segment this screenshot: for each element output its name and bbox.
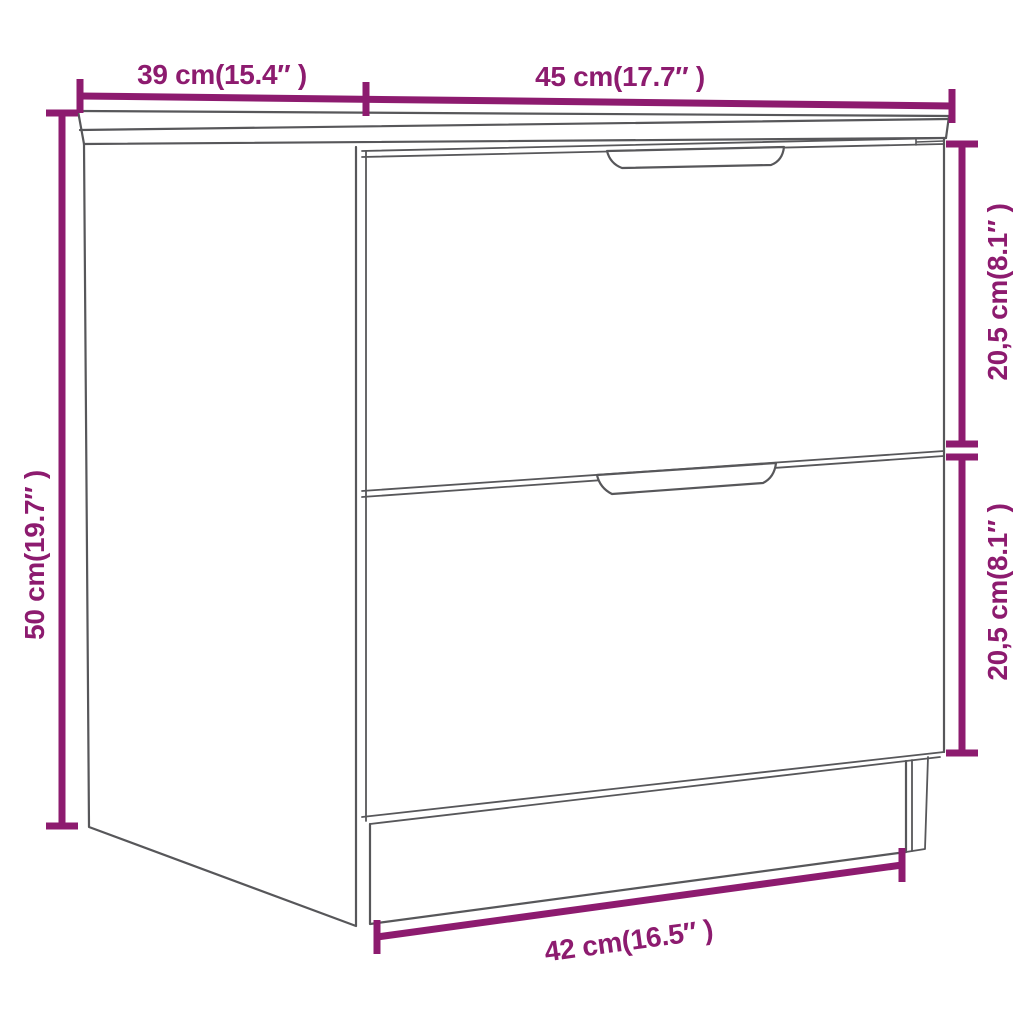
dim-depth-label: 39 cm(15.4″ ) <box>137 59 307 90</box>
diagram-canvas: 39 cm(15.4″ ) 45 cm(17.7″ ) 50 cm(19.7″ … <box>0 0 1024 1024</box>
lower-drawer-handle <box>597 463 776 494</box>
dimension-labels: 39 cm(15.4″ ) 45 cm(17.7″ ) 50 cm(19.7″ … <box>19 59 1013 967</box>
dim-lower-drawer-label: 20,5 cm(8.1″ ) <box>982 503 1013 680</box>
lower-drawer-bottom-edge <box>362 752 944 824</box>
dim-width-label: 45 cm(17.7″ ) <box>535 61 705 92</box>
cabinet-top-panel <box>78 111 949 144</box>
dim-base-label: 42 cm(16.5″ ) <box>542 914 714 968</box>
dim-line-upper-drawer <box>946 144 978 444</box>
upper-drawer-handle <box>607 147 784 168</box>
cabinet-line-art <box>78 111 949 926</box>
dimension-lines <box>46 79 978 954</box>
product-dimension-diagram: 39 cm(15.4″ ) 45 cm(17.7″ ) 50 cm(19.7″ … <box>0 0 1024 1024</box>
dim-line-height <box>46 113 78 826</box>
dim-upper-drawer-label: 20,5 cm(8.1″ ) <box>982 203 1013 380</box>
cabinet-left-panel <box>84 144 366 926</box>
dim-line-lower-drawer <box>946 457 978 753</box>
dim-height-label: 50 cm(19.7″ ) <box>19 470 50 640</box>
cabinet-right-edge <box>916 138 944 752</box>
